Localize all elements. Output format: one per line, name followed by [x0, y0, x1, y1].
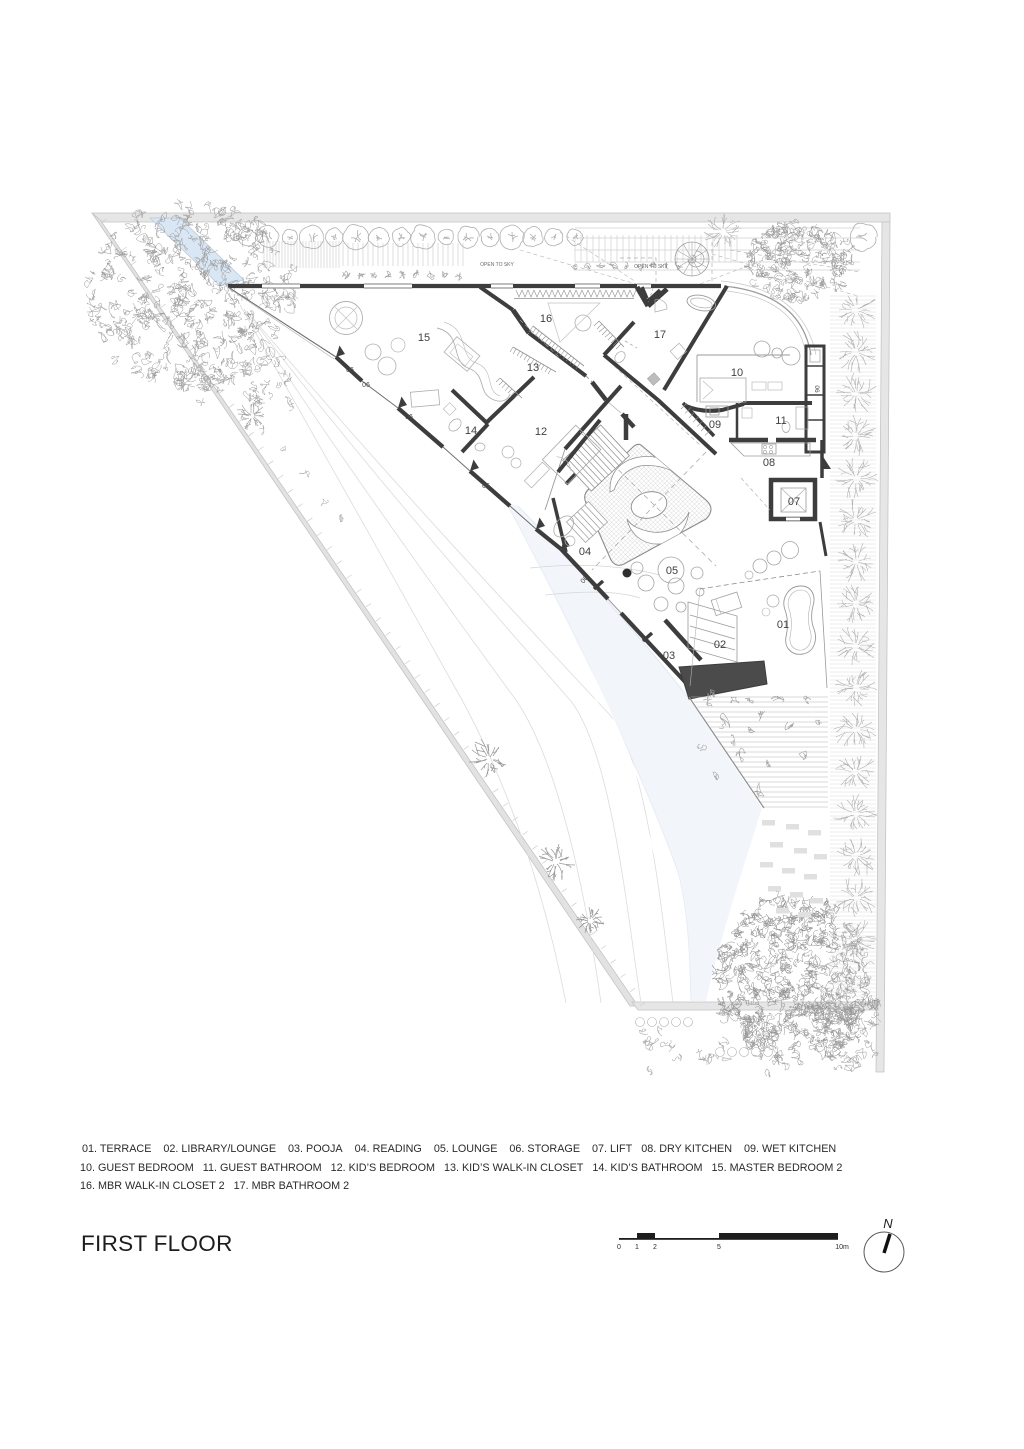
- svg-text:07: 07: [788, 496, 800, 508]
- svg-text:06: 06: [405, 414, 413, 421]
- svg-text:10: 10: [731, 367, 743, 379]
- svg-text:12: 12: [535, 426, 547, 438]
- svg-text:FIRST FLOOR: FIRST FLOOR: [81, 1231, 233, 1256]
- svg-text:OPEN TO SKY: OPEN TO SKY: [634, 264, 668, 270]
- svg-text:06: 06: [346, 367, 354, 374]
- svg-text:11: 11: [775, 415, 786, 427]
- svg-text:OPEN TO SKY: OPEN TO SKY: [480, 262, 514, 268]
- svg-text:10. GUEST BEDROOM 11. GUEST: 10. GUEST BEDROOM 11. GUEST BATHROOM 12.…: [80, 1162, 842, 1174]
- svg-text:5: 5: [717, 1244, 721, 1251]
- svg-text:13: 13: [527, 362, 539, 374]
- svg-text:09: 09: [709, 419, 721, 431]
- svg-text:17: 17: [654, 329, 666, 341]
- svg-text:06: 06: [813, 385, 820, 393]
- svg-text:16. MBR WALK-IN CLOSET 2 17.: 16. MBR WALK-IN CLOSET 2 17. MBR BATHROO…: [80, 1180, 349, 1192]
- svg-text:16: 16: [540, 313, 552, 325]
- svg-text:05: 05: [666, 565, 678, 577]
- svg-text:02: 02: [714, 639, 726, 651]
- svg-text:N: N: [883, 1216, 893, 1231]
- svg-text:14: 14: [465, 425, 477, 437]
- svg-text:0: 0: [617, 1244, 621, 1251]
- svg-text:01: 01: [777, 619, 789, 631]
- svg-text:04: 04: [579, 546, 591, 558]
- svg-text:08: 08: [763, 457, 775, 469]
- svg-text:10m: 10m: [835, 1244, 849, 1251]
- svg-text:01. TERRACE 02. LIBRARY/LOU: 01. TERRACE 02. LIBRARY/LOUNGE 03. POOJA…: [82, 1143, 836, 1155]
- svg-text:03: 03: [663, 650, 675, 662]
- svg-text:15: 15: [418, 332, 430, 344]
- svg-text:2: 2: [653, 1244, 657, 1251]
- svg-text:06: 06: [482, 483, 490, 490]
- svg-text:1: 1: [635, 1244, 639, 1251]
- svg-text:06: 06: [362, 382, 370, 389]
